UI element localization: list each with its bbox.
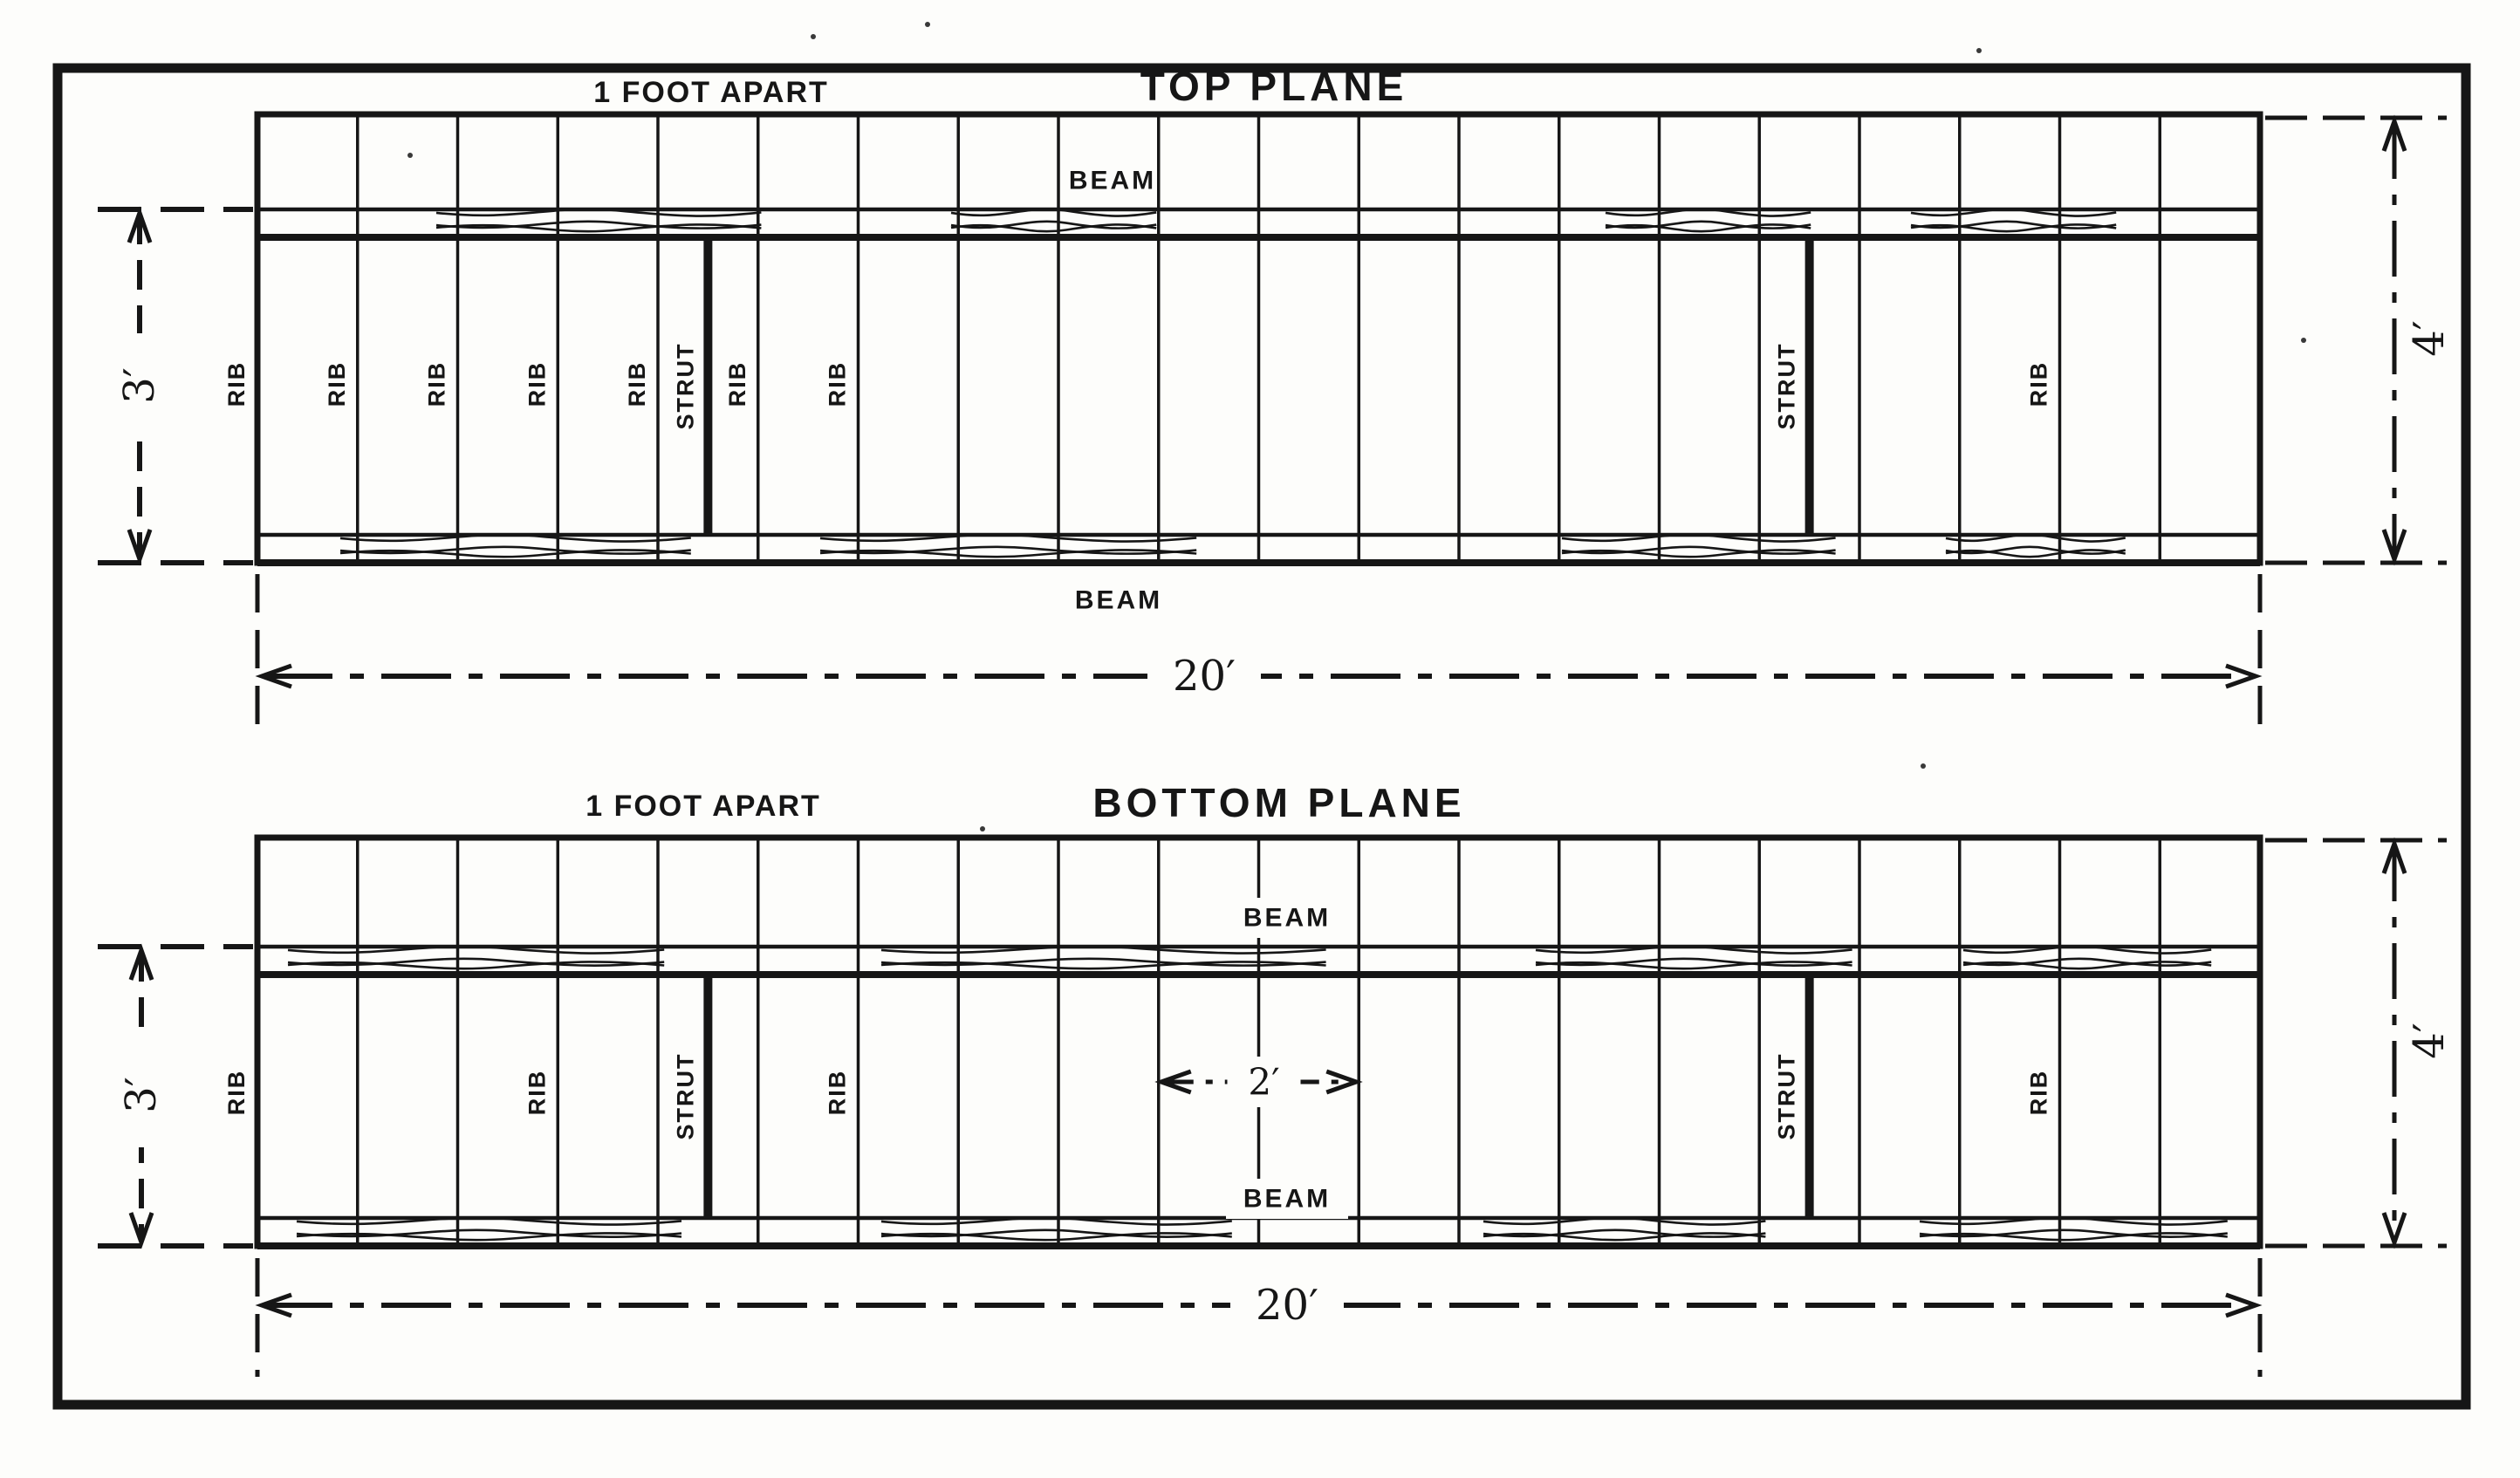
- beam-label-front: BEAM: [1069, 167, 1156, 195]
- rib-label: RIB: [524, 361, 550, 407]
- rib-label: RIB: [324, 361, 350, 407]
- rib-spacing-note: 1 FOOT APART: [593, 76, 829, 109]
- scan-speck: [1921, 763, 1926, 769]
- rib-label: RIB: [223, 361, 250, 407]
- rib-label: RIB: [825, 1070, 851, 1116]
- rib-label: RIB: [2026, 361, 2052, 407]
- dim-3ft-label: 3′: [117, 1077, 166, 1112]
- dimension-arrowhead: [1326, 1071, 1356, 1092]
- rib-label: RIB: [223, 1070, 250, 1116]
- dim-2ft-label: 2′: [1248, 1061, 1279, 1104]
- rib-spacing-note: 1 FOOT APART: [585, 790, 821, 823]
- rib-label: RIB: [424, 361, 450, 407]
- rib-label: RIB: [724, 361, 750, 407]
- rib-label: RIB: [825, 361, 851, 407]
- dim-4ft-label: 4′: [2405, 320, 2454, 356]
- rib-label: RIB: [624, 361, 650, 407]
- wing-framing-diagram: STRUTSTRUTRIBRIBRIBRIBRIBRIBRIBRIBBEAMBE…: [0, 0, 2520, 1478]
- strut-label: STRUT: [1774, 1053, 1800, 1140]
- scan-speck: [811, 34, 816, 39]
- beam-label-front: BEAM: [1243, 904, 1331, 933]
- dim-4ft-label: 4′: [2405, 1023, 2454, 1058]
- panel-title: BOTTOM PLANE: [1092, 780, 1465, 825]
- strut-label: STRUT: [672, 343, 698, 430]
- top-plane: STRUTSTRUTRIBRIBRIBRIBRIBRIBRIBRIBBEAMBE…: [98, 64, 2454, 726]
- dim-3ft-label: 3′: [115, 367, 164, 403]
- scan-speck: [1976, 48, 1982, 53]
- scan-speck: [840, 1404, 846, 1409]
- figure-canvas: STRUTSTRUTRIBRIBRIBRIBRIBRIBRIBRIBBEAMBE…: [0, 0, 2520, 1478]
- dim-20ft-label: 20′: [1173, 652, 1236, 701]
- dim-20ft-label: 20′: [1256, 1281, 1318, 1330]
- panel-title: TOP PLANE: [1140, 64, 1408, 109]
- scan-speck: [2301, 338, 2306, 343]
- rib-label: RIB: [2026, 1070, 2052, 1116]
- strut-label: STRUT: [1774, 343, 1800, 430]
- beam-label-rear: BEAM: [1243, 1185, 1331, 1214]
- rib-label: RIB: [524, 1070, 550, 1116]
- strut-label: STRUT: [672, 1053, 698, 1140]
- panels-group: STRUTSTRUTRIBRIBRIBRIBRIBRIBRIBRIBBEAMBE…: [98, 64, 2454, 1377]
- beam-label-rear: BEAM: [1075, 586, 1162, 615]
- scan-speck: [925, 22, 930, 27]
- bottom-plane: STRUTSTRUTRIBRIBRIBRIBBEAMBEAMBOTTOM PLA…: [98, 780, 2454, 1377]
- scan-speck: [407, 153, 413, 158]
- scan-speck: [980, 826, 985, 831]
